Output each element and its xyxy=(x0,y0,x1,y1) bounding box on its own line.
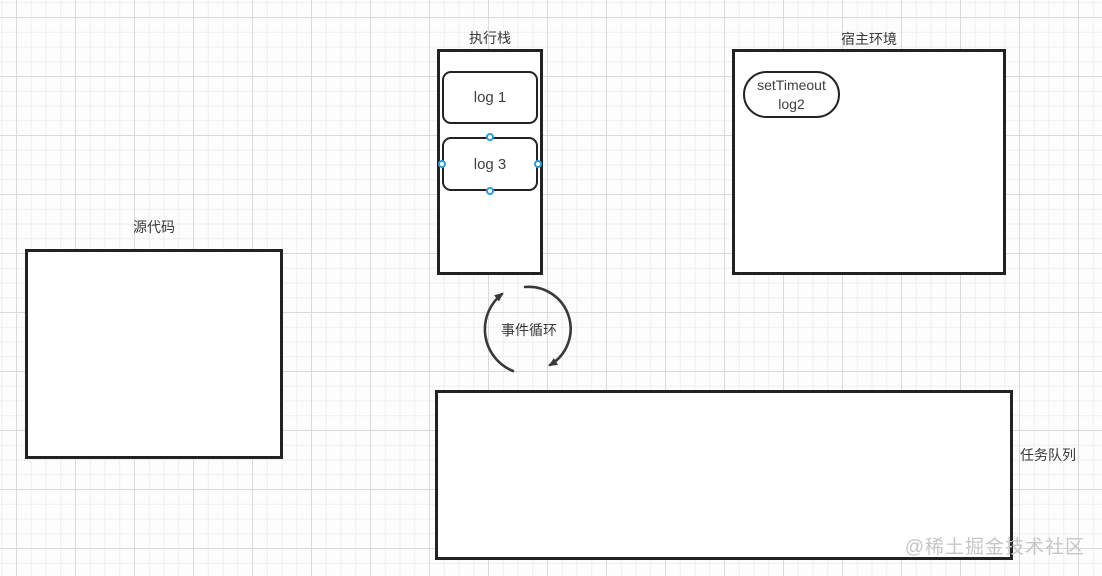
host-task-line1: setTimeout xyxy=(757,76,826,95)
source-code-box[interactable] xyxy=(25,249,283,459)
host-environment-label: 宿主环境 xyxy=(732,29,1006,49)
diagram-canvas[interactable]: 执行栈 log 1 log 3 宿主环境 setTimeout log2 源代码… xyxy=(0,0,1102,576)
host-task-line2: log2 xyxy=(778,95,804,114)
selection-handle-top[interactable] xyxy=(486,133,494,141)
event-loop-label: 事件循环 xyxy=(459,320,599,340)
stack-frame-log3[interactable]: log 3 xyxy=(442,137,538,191)
host-task-settimeout[interactable]: setTimeout log2 xyxy=(743,71,840,118)
selection-handle-bottom[interactable] xyxy=(486,187,494,195)
selection-handle-right[interactable] xyxy=(534,160,542,168)
stack-frame-log1[interactable]: log 1 xyxy=(442,71,538,124)
execution-stack-label: 执行栈 xyxy=(437,28,543,48)
juejin-watermark: @稀土掘金技术社区 xyxy=(905,532,1085,559)
source-code-label: 源代码 xyxy=(25,217,283,237)
task-queue-label: 任务队列 xyxy=(1020,445,1076,465)
selection-handle-left[interactable] xyxy=(438,160,446,168)
